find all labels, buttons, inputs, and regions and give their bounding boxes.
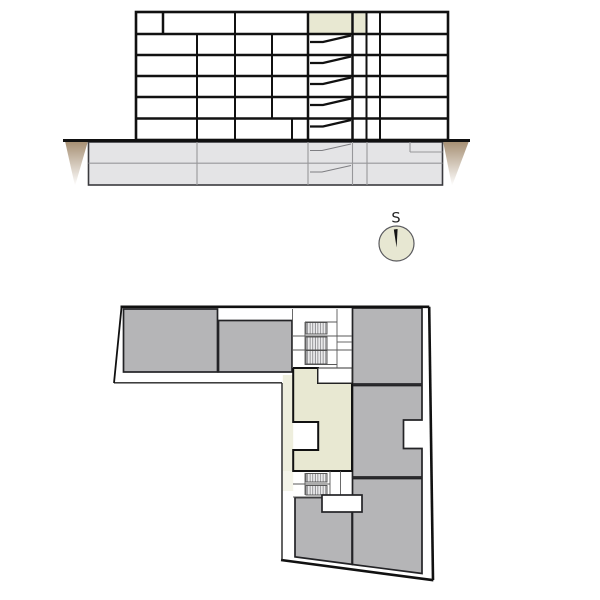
building-section bbox=[63, 12, 470, 186]
drawing-canvas: S bbox=[0, 0, 600, 600]
highlighted-floor-cell[interactable] bbox=[310, 14, 353, 34]
plan-rooms bbox=[124, 308, 423, 574]
floor-plan bbox=[114, 307, 433, 580]
room-wing-right[interactable] bbox=[219, 321, 293, 373]
compass: S bbox=[379, 211, 414, 262]
earth-mark-right bbox=[443, 141, 469, 186]
compass-label: S bbox=[391, 211, 400, 227]
room-wing-left[interactable] bbox=[124, 309, 218, 372]
room-top-right[interactable] bbox=[353, 308, 423, 384]
section-basement bbox=[89, 142, 443, 185]
architectural-drawing-page: S bbox=[0, 0, 600, 600]
highlighted-unit-balcony-fade bbox=[283, 471, 293, 491]
stair-flights-top bbox=[306, 323, 327, 365]
stair-landing-cutout bbox=[322, 495, 362, 512]
earth-mark-left bbox=[65, 141, 88, 186]
unit-corner-room bbox=[318, 368, 352, 383]
highlighted-unit-balcony[interactable] bbox=[283, 375, 293, 471]
room-bottom-right[interactable] bbox=[353, 479, 423, 574]
highlighted-floor-cell-narrow[interactable] bbox=[354, 14, 366, 34]
